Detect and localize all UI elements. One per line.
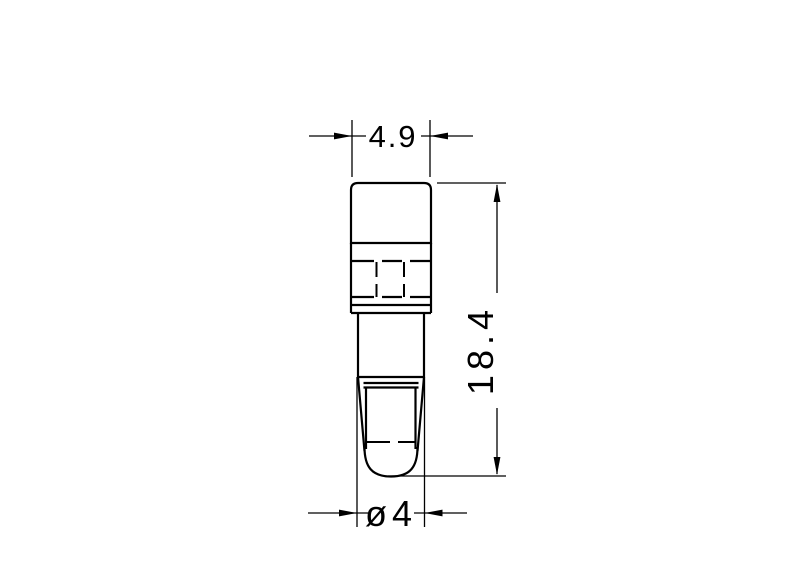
dimension-width: 4.9 <box>309 119 473 177</box>
height-arrow-bottom <box>494 457 501 475</box>
hidden-detail <box>365 262 415 442</box>
diameter-arrow-left <box>339 510 357 517</box>
width-arrow-left <box>334 133 352 140</box>
cap-outline <box>351 183 431 243</box>
width-arrow-right <box>430 133 448 140</box>
bulb-sides <box>366 388 416 449</box>
dimension-height: 18.4 <box>388 183 506 476</box>
neck-outline <box>358 313 424 377</box>
height-dimension-label: 18.4 <box>460 305 501 395</box>
height-arrow-top <box>494 184 501 202</box>
part-outline <box>351 183 431 477</box>
width-dimension-label: 4.9 <box>369 119 418 154</box>
dimension-diameter: ø4 <box>308 377 467 534</box>
technical-drawing-page: 4.9 18.4 ø4 <box>0 0 800 576</box>
bulb-dome <box>365 447 418 477</box>
diameter-arrow-right <box>425 510 443 517</box>
technical-drawing-canvas: 4.9 18.4 ø4 <box>0 0 800 576</box>
diameter-dimension-label: ø4 <box>365 493 417 534</box>
bulb-seat-lines <box>364 383 419 388</box>
body-sides <box>351 243 431 313</box>
